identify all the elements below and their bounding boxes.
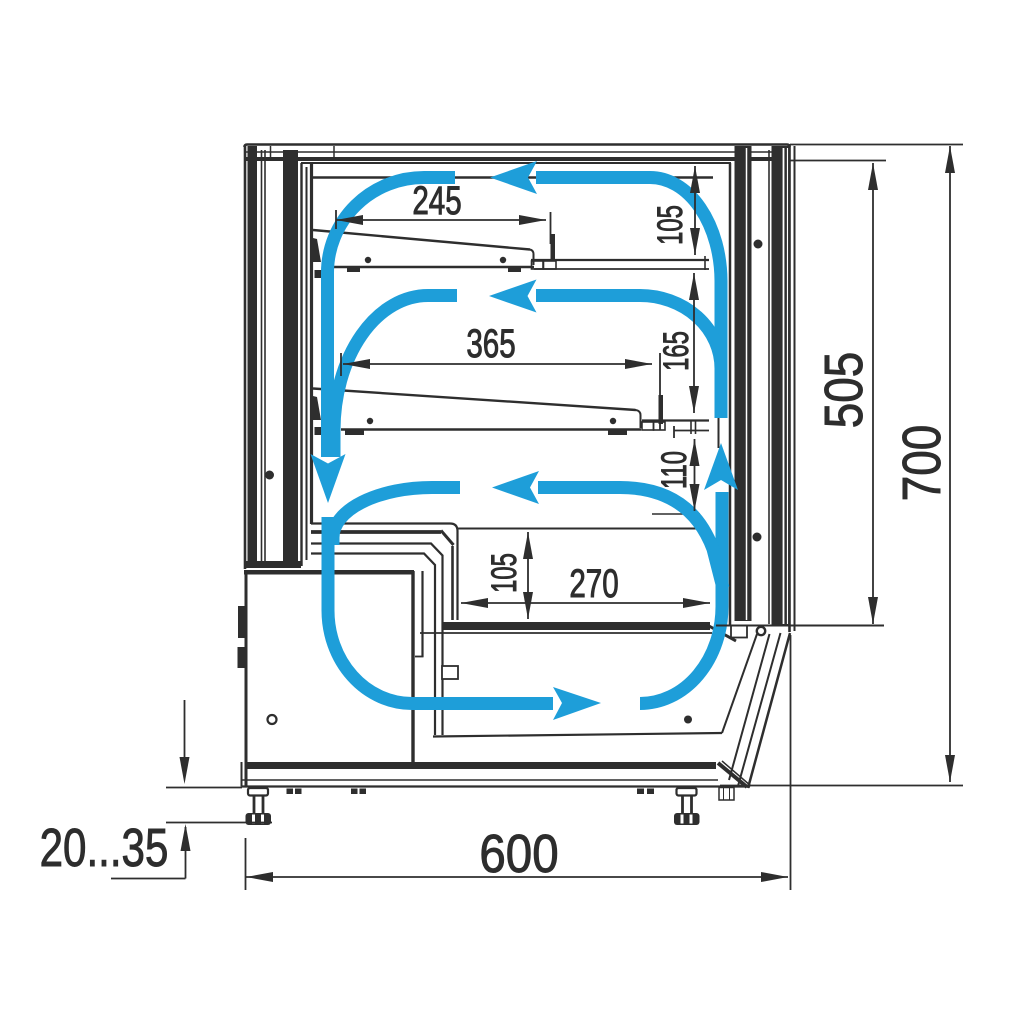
svg-text:505: 505 xyxy=(814,352,874,429)
svg-text:110: 110 xyxy=(656,451,695,489)
svg-text:245: 245 xyxy=(412,179,461,223)
svg-text:600: 600 xyxy=(479,823,558,884)
svg-text:165: 165 xyxy=(658,331,697,371)
svg-text:700: 700 xyxy=(892,425,952,502)
svg-text:20...35: 20...35 xyxy=(40,818,169,878)
svg-text:105: 105 xyxy=(486,553,525,593)
svg-text:365: 365 xyxy=(466,322,515,366)
svg-text:105: 105 xyxy=(652,205,691,245)
svg-text:270: 270 xyxy=(569,562,618,606)
